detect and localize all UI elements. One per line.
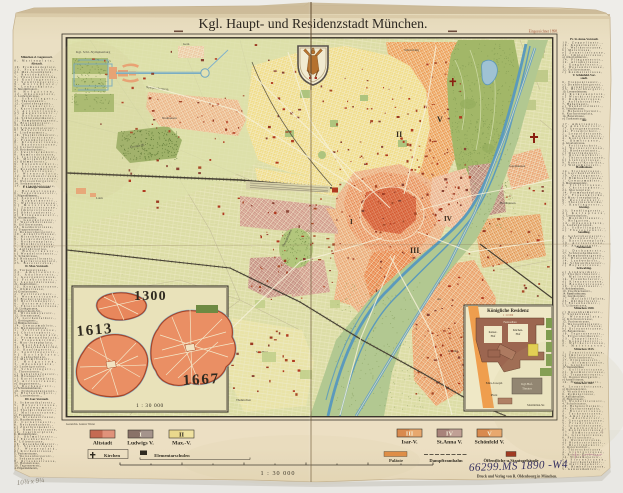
- svg-text:5. Pilgersheimerstr.,: 5. Pilgersheimerstr.,: [14, 195, 39, 198]
- svg-text:Hof: Hof: [516, 332, 521, 336]
- svg-text:I: I: [350, 218, 353, 226]
- svg-text:St.Anna V.: St.Anna V.: [437, 440, 463, 446]
- svg-text:II. Max-Vorstadt.: II. Max-Vorstadt.: [25, 264, 48, 268]
- svg-text:14. Sternstrasse,: 14. Sternstrasse,: [562, 170, 601, 173]
- svg-text:1 : 10 000: 1 : 10 000: [503, 314, 514, 317]
- svg-text:Giesing.: Giesing.: [579, 205, 590, 209]
- svg-text:Ludwigs V.: Ludwigs V.: [127, 441, 154, 447]
- svg-text:Au.: Au.: [582, 118, 587, 122]
- svg-text:Isar-V.: Isar-V.: [401, 440, 418, 446]
- svg-text:Sendling.: Sendling.: [578, 230, 591, 234]
- svg-text:Au: Au: [437, 297, 441, 301]
- svg-text:Gezeichn. Gustav Wenz: Gezeichn. Gustav Wenz: [66, 422, 95, 426]
- svg-text:III: III: [406, 431, 414, 438]
- svg-text:II: II: [396, 130, 402, 139]
- svg-text:Schwabing: Schwabing: [404, 48, 419, 52]
- svg-text:Altstadt: Altstadt: [93, 441, 112, 447]
- svg-text:München d. Gegenwart.: München d. Gegenwart.: [21, 55, 53, 59]
- svg-text:Kirchen: Kirchen: [104, 453, 120, 458]
- svg-text:Festsaalbau: Festsaalbau: [503, 321, 517, 324]
- svg-text:III. Isar-Vorstadt.: III. Isar-Vorstadt.: [25, 397, 49, 401]
- svg-text:Haidhausen.: Haidhausen.: [576, 165, 593, 169]
- svg-text:IV: IV: [444, 215, 452, 223]
- svg-text:V: V: [437, 115, 443, 124]
- svg-text:Schwabing.: Schwabing.: [577, 266, 592, 270]
- svg-text:stadt.: stadt.: [581, 76, 589, 80]
- svg-text:10. Nymphenburgerstr.,: 10. Nymphenburgerstr.,: [14, 390, 56, 393]
- svg-text:3. Mariannenplatz,: 3. Mariannenplatz,: [562, 182, 587, 185]
- svg-text:Giesing: Giesing: [448, 349, 458, 353]
- svg-text:e) Gabelsbergerstr.,: e) Gabelsbergerstr.,: [14, 373, 58, 376]
- svg-text:IV. St.Anna-Vorstadt.: IV. St.Anna-Vorstadt.: [570, 37, 599, 41]
- svg-text:Eingezeichnet 1898.: Eingezeichnet 1898.: [529, 30, 558, 34]
- svg-text:V: V: [487, 431, 492, 438]
- svg-text:1300: 1300: [134, 289, 167, 304]
- svg-text:5. Auffahrtsallee,: 5. Auffahrtsallee,: [14, 248, 47, 251]
- svg-text:III: III: [410, 246, 419, 255]
- svg-text:1613: 1613: [76, 321, 114, 340]
- svg-text:Druck und Verlag von R. Oldenb: Druck und Verlag von R. Oldenbourg in Mü…: [477, 475, 557, 479]
- svg-text:Haidhausen: Haidhausen: [500, 201, 516, 205]
- svg-text:Max.-V.: Max.-V.: [172, 441, 191, 447]
- svg-text:I. Ludwigs-Vorstadt.: I. Ludwigs-Vorstadt.: [23, 185, 51, 189]
- svg-text:IV: IV: [446, 431, 454, 438]
- svg-text:Hof: Hof: [491, 334, 496, 338]
- svg-text:Neuhausen.: Neuhausen.: [577, 245, 593, 249]
- svg-text:Schönfeld V.: Schönfeld V.: [475, 440, 505, 446]
- svg-text:1667: 1667: [182, 371, 220, 389]
- svg-text:Thalkirchen: Thalkirchen: [236, 398, 251, 402]
- svg-text:München 1300.: München 1300.: [574, 306, 595, 310]
- svg-text:II: II: [179, 432, 185, 439]
- svg-text:4. Pilgersheimerstr.,: 4. Pilgersheimerstr.,: [14, 467, 38, 470]
- svg-text:Dampftrambahn: Dampftrambahn: [429, 458, 463, 463]
- svg-text:1 : 30 000: 1 : 30 000: [136, 403, 164, 409]
- svg-text:Kgl. Haupt- und Residenzstadt: Kgl. Haupt- und Residenzstadt München.: [199, 17, 428, 32]
- svg-text:Gern: Gern: [183, 42, 190, 46]
- svg-text:Altstadt.: Altstadt.: [31, 61, 43, 65]
